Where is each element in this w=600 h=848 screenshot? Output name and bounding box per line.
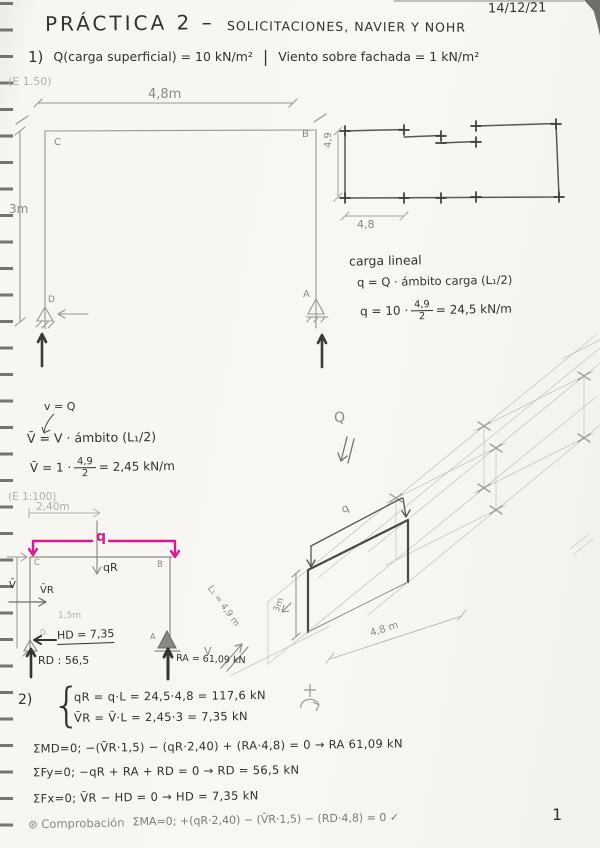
roller-support-icon [306,299,328,322]
frac-num: 4,9 [74,456,96,469]
q-double-arrow [338,437,354,463]
notebook-page: 14/12/21 PRÁCTICA 2 – SOLICITACIONES, NA… [0,0,600,848]
frame-elevation-drawing [15,99,328,329]
floor-plan-drawing [334,119,564,220]
problem1-number: 1) [28,49,43,66]
model-height-dim: 1,5m [58,611,81,621]
resultant-q-eq: qR = q·L = 24,5·4,8 = 117,6 kN [74,689,266,704]
check-label: ⊛ Comprobación [28,817,125,832]
model-node-b: B [157,561,163,571]
wind-note: v = Q [44,401,75,414]
wind-statement: Viento sobre fachada = 1 kN/m² [278,50,479,64]
sum-fy-eq: ΣFy=0; −qR + RA + RD = 0 → RD = 56,5 kN [33,764,300,780]
load-statement: Q(carga superficial) = 10 kN/m² [53,50,252,64]
hd-value: HD = 7,35 [57,628,115,645]
rd-value: RD : 56,5 [38,655,89,668]
wind-label: V [204,646,212,659]
title-rest: SOLICITACIONES, NAVIER Y NOHR [227,19,466,35]
iso-q-area-label: Q [334,410,345,426]
iso-frame [308,520,408,632]
linear-load-formula: q = Q · ámbito carga (L₁/2) [357,274,513,290]
isometric-sketch [230,335,600,676]
pin-support-icon [36,307,88,328]
iso-load-arrows [307,498,410,567]
model-top-dim: 2,40m [36,501,70,513]
title-main: PRÁCTICA 2 – [45,11,215,36]
node-d-label: D [48,295,55,305]
frame-height-dim: 3m [9,203,28,217]
v-label: V̄ [9,580,16,592]
calc-prefix: q = 10 · [360,304,408,319]
plan-depth-dim: 4,9 [323,132,335,148]
model-node-d: D [40,629,46,638]
node-b-label: B [302,129,309,141]
problem1-statement: 1) Q(carga superficial) = 10 kN/m² | Vie… [28,48,479,66]
fraction: 4,9 2 [411,299,433,323]
statement-divider: | [263,48,268,66]
column-cross-marks [340,119,564,203]
qr-label: qR [103,562,118,575]
fraction: 4,9 2 [74,456,96,480]
moment-sign-icon [301,684,319,711]
iso-width-dim [326,610,466,663]
wind-calc: V̄ = 1 · 4,9 2 = 2,45 kN/m [30,455,175,481]
problem2-number: 2) [18,692,32,708]
plan-bay-dim: 4,8 [357,219,375,232]
resultant-v-eq: V̄R = V̄·L = 2,45·3 = 7,35 kN [74,710,248,725]
reaction-arrows [38,334,326,367]
model-node-c: C [34,559,40,569]
model-node-a: A [150,632,155,641]
scale-note-1: (E 1.50) [8,76,52,89]
calc-result: = 24,5 kN/m [436,303,512,318]
frac-den: 2 [419,312,425,323]
vr-label: V̄R [40,585,54,597]
grid-cross-marks [390,372,590,514]
frac-den: 2 [82,469,88,480]
page-title: PRÁCTICA 2 – SOLICITACIONES, NAVIER Y NO… [45,12,466,35]
frac-num: 4,9 [411,299,433,312]
page-number: 1 [552,806,562,824]
date: 14/12/21 [488,1,547,17]
wind-formula: V̄ = V · ámbito (L₁/2) [27,430,156,446]
calc-result: = 2,45 kN/m [99,460,175,475]
vr-resultant-arrow [9,598,46,606]
model-load-label: q [96,529,106,545]
calc-prefix: V̄ = 1 · [30,461,71,475]
roof-grid-lines [230,335,600,676]
node-c-label: C [54,137,61,149]
frame-width-dim: 4,8m [148,88,181,103]
linear-load-heading: carga lineal [349,253,422,269]
linear-load-calc: q = 10 · 4,9 2 = 24,5 kN/m [360,298,512,324]
node-a-label: A [303,289,310,301]
